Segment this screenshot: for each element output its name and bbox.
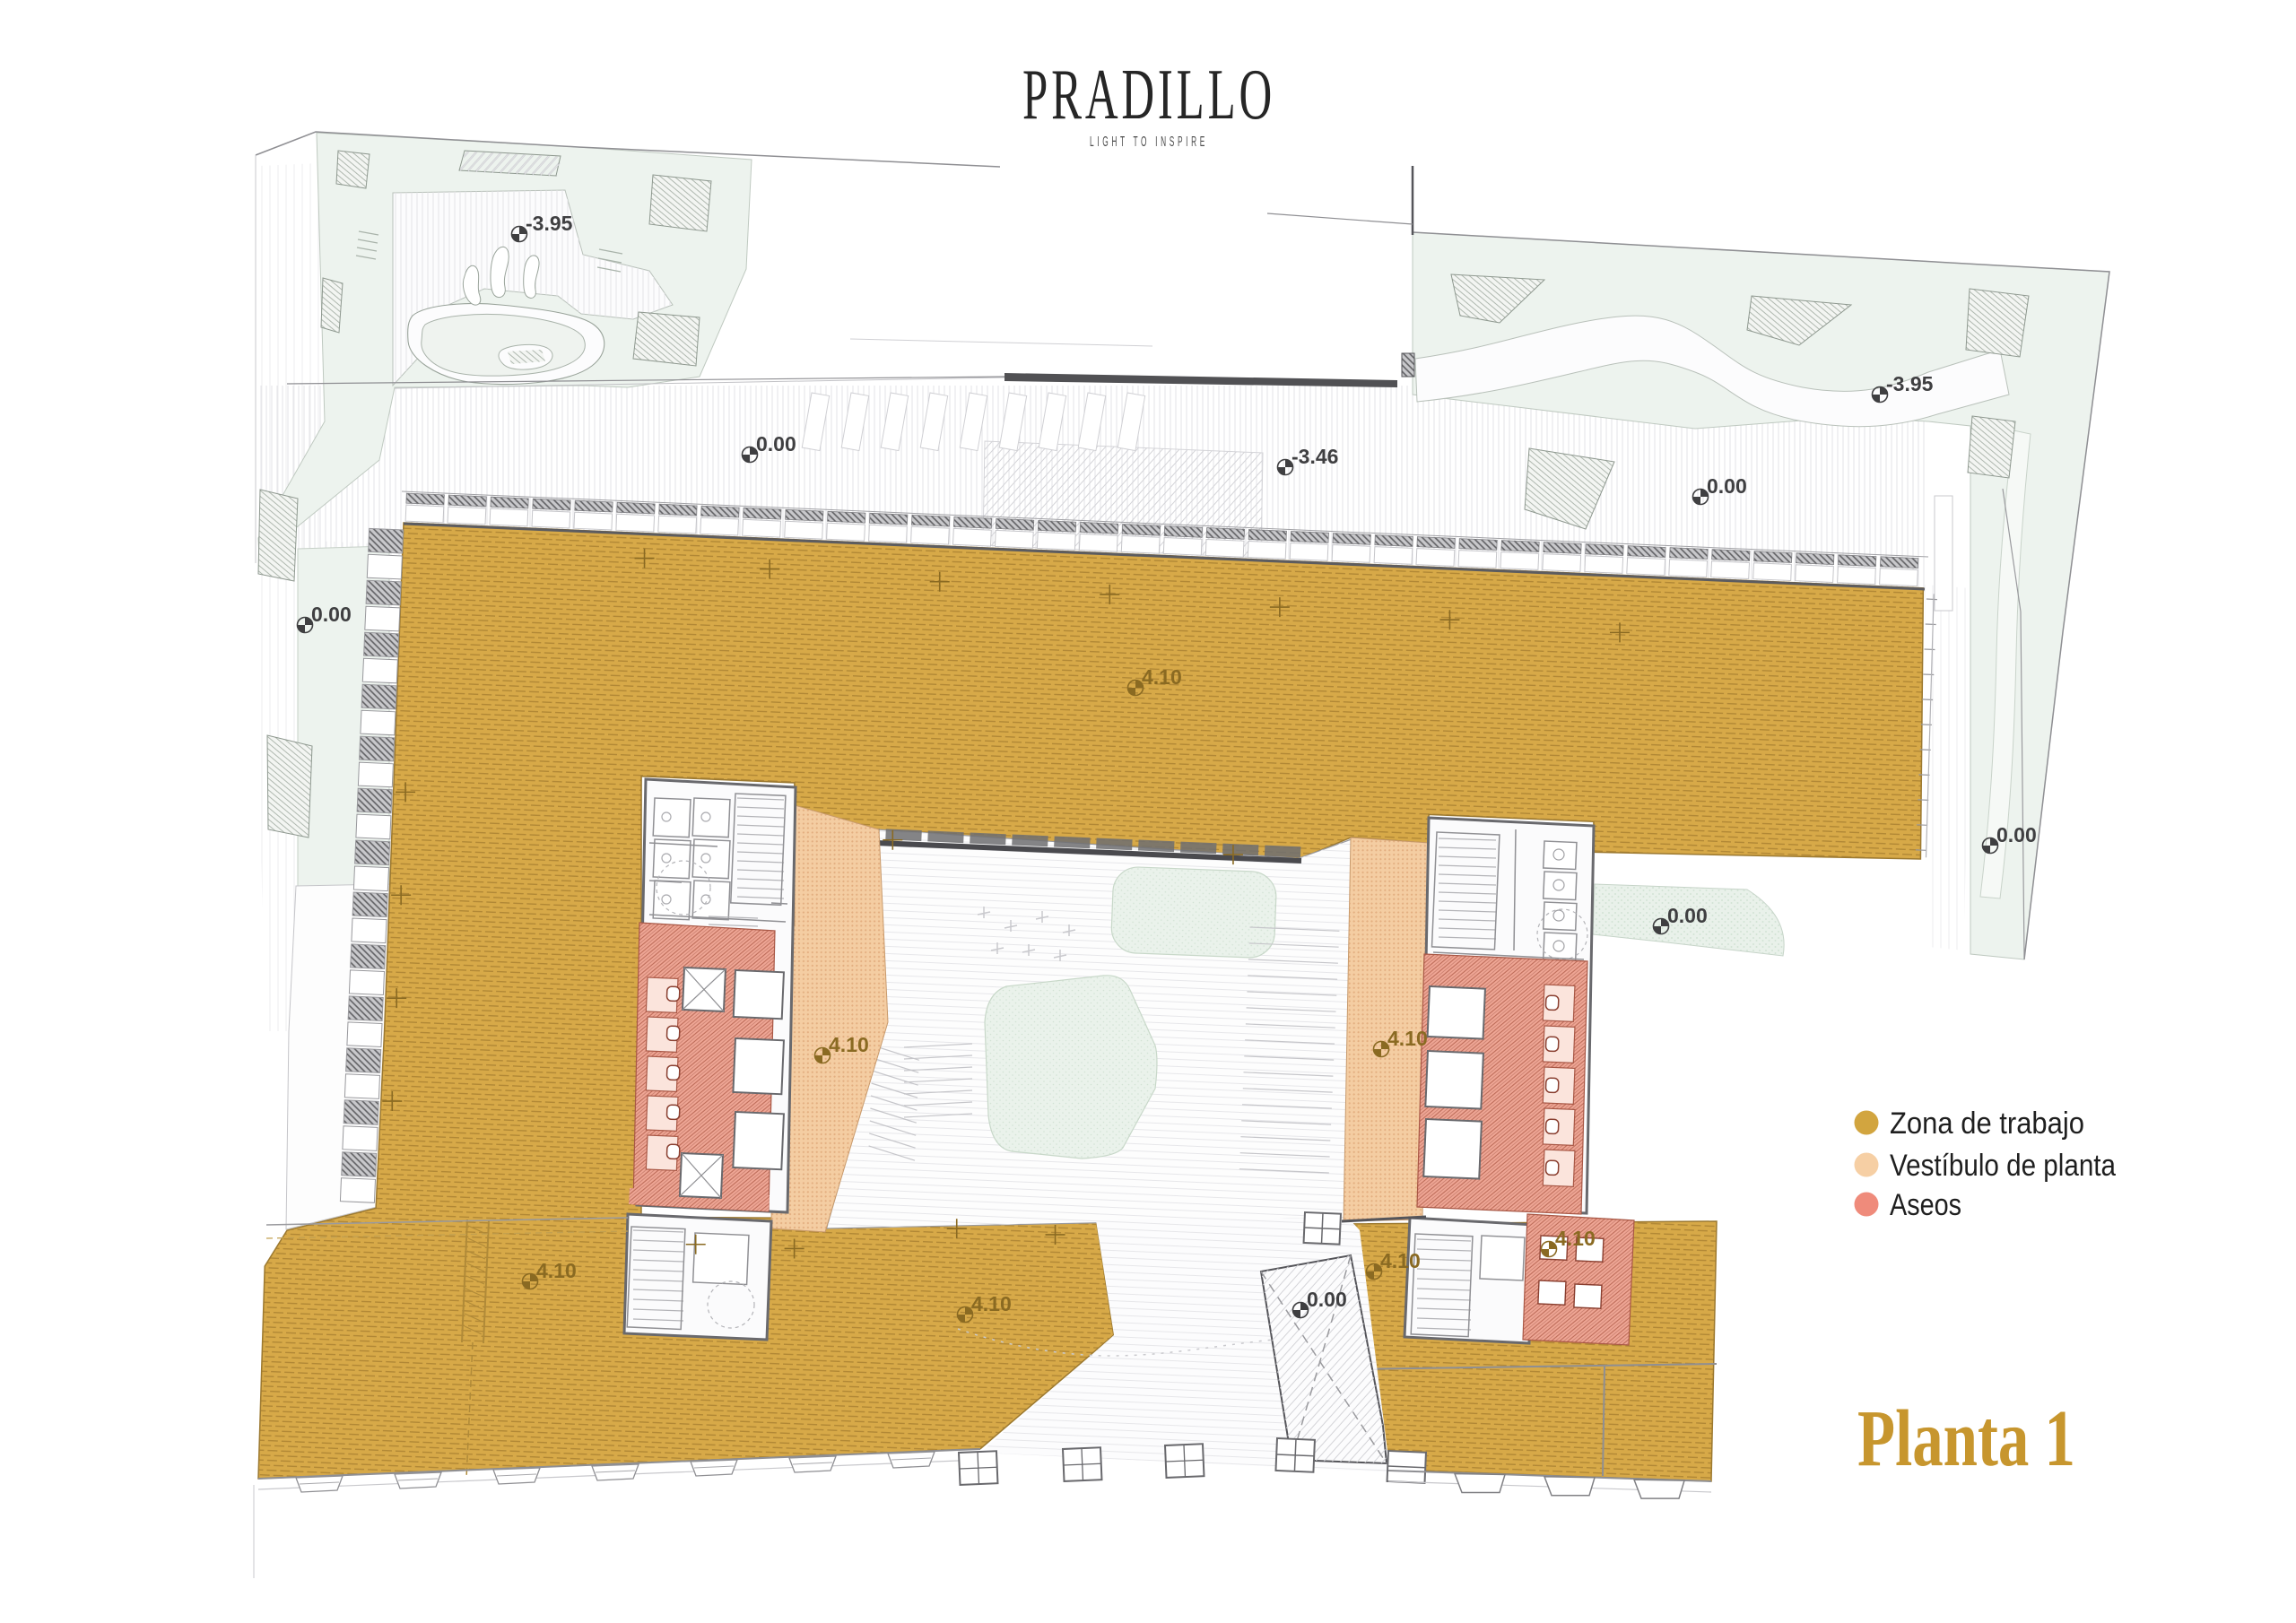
svg-text:0.00: 0.00 [1307, 1288, 1347, 1311]
svg-text:Planta 1: Planta 1 [1857, 1394, 2075, 1483]
svg-text:-3.46: -3.46 [1291, 445, 1338, 468]
svg-text:-3.95: -3.95 [526, 212, 573, 235]
svg-text:4.10: 4.10 [1387, 1027, 1428, 1050]
svg-text:4.10: 4.10 [971, 1292, 1012, 1315]
svg-text:0.00: 0.00 [756, 432, 796, 456]
svg-text:4.10: 4.10 [536, 1259, 577, 1282]
svg-text:0.00: 0.00 [311, 603, 352, 626]
svg-text:LIGHT TO INSPIRE: LIGHT TO INSPIRE [1090, 135, 1208, 150]
svg-text:Aseos: Aseos [1890, 1188, 1961, 1222]
svg-text:Vestíbulo de planta: Vestíbulo de planta [1890, 1149, 2116, 1183]
svg-text:4.10: 4.10 [829, 1033, 869, 1056]
svg-text:4.10: 4.10 [1380, 1249, 1421, 1272]
svg-text:0.00: 0.00 [1707, 474, 1747, 498]
svg-text:0.00: 0.00 [1996, 823, 2037, 846]
svg-text:4.10: 4.10 [1142, 665, 1182, 689]
svg-text:PRADILLO: PRADILLO [1022, 56, 1275, 135]
svg-text:-3.95: -3.95 [1886, 372, 1934, 395]
svg-text:Zona de trabajo: Zona de trabajo [1890, 1107, 2084, 1141]
svg-text:0.00: 0.00 [1667, 904, 1708, 927]
svg-text:4.10: 4.10 [1555, 1227, 1596, 1250]
